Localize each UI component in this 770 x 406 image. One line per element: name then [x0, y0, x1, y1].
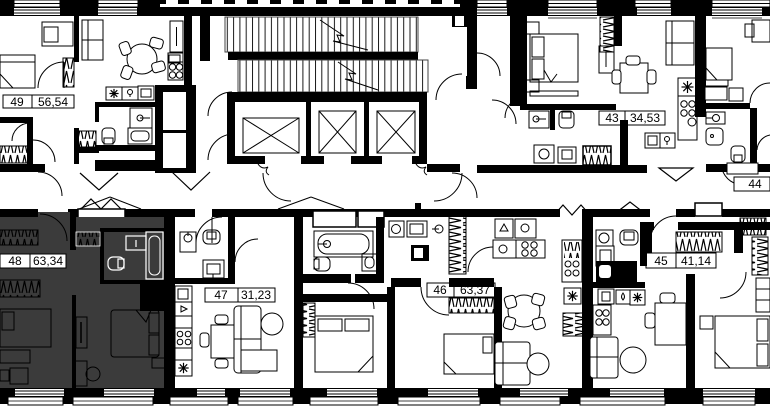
svg-text:44: 44 [748, 177, 762, 191]
svg-text:47: 47 [214, 288, 228, 302]
svg-text:43: 43 [605, 111, 619, 125]
svg-text:49: 49 [10, 95, 24, 109]
svg-text:31,23: 31,23 [241, 288, 271, 302]
svg-text:48: 48 [8, 254, 22, 268]
svg-text:56,54: 56,54 [38, 95, 68, 109]
svg-text:41,14: 41,14 [681, 254, 711, 268]
svg-text:45: 45 [654, 254, 668, 268]
svg-text:46: 46 [433, 283, 447, 297]
svg-text:34,53: 34,53 [630, 111, 660, 125]
svg-text:63,34: 63,34 [33, 254, 63, 268]
